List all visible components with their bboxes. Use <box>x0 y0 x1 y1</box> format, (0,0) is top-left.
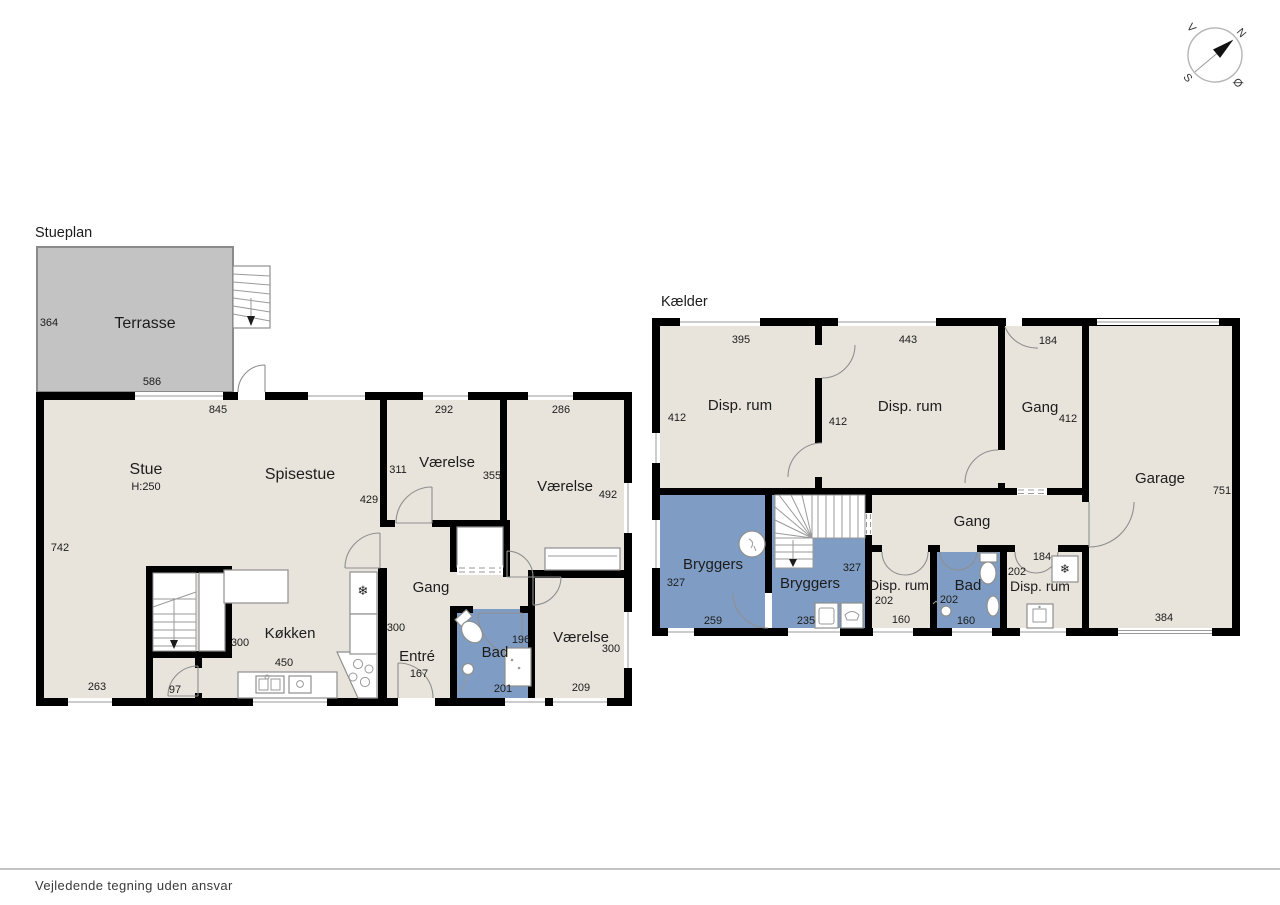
room-label-bad: Bad <box>482 644 509 661</box>
room-label-koekken: Køkken <box>265 625 316 642</box>
room-label-spisestue: Spisestue <box>265 466 335 483</box>
dim-bryggers-v-left: 327 <box>667 577 685 589</box>
floorplan-page: ❄ <box>0 0 1280 905</box>
utility-sink-icon <box>1027 604 1053 628</box>
dim-gang-n-door: 184 <box>1039 335 1057 347</box>
dim-gang-width: 300 <box>387 622 405 634</box>
compass-icon: N Ø S V <box>1157 0 1271 113</box>
closet-sliding-doors <box>457 565 503 575</box>
dim-vestibule: 97 <box>169 684 181 696</box>
dim-koekken-left: 300 <box>231 637 249 649</box>
compass-west-label: V <box>1184 21 1198 35</box>
dim-disp-n-left: 412 <box>829 416 847 428</box>
terrace-door <box>238 365 265 392</box>
room-label-disp-s2: Disp. rum <box>1010 578 1070 594</box>
dim-gang-n-right: 412 <box>1059 413 1077 425</box>
dim-spisestue-right: 429 <box>360 494 378 506</box>
dim-vaerelse-ne-right: 492 <box>599 489 617 501</box>
kitchen-counter <box>238 672 337 698</box>
floor-drain-icon <box>739 531 765 557</box>
kitchen-island <box>224 570 288 603</box>
room-label-stue: Stue <box>130 461 163 478</box>
dim-vaerelse-nv-left: 311 <box>389 464 407 476</box>
bath-cabinet-icon <box>505 648 531 686</box>
room-label-entre: Entré <box>399 648 435 665</box>
room-label-bad-kaelder: Bad <box>955 577 982 594</box>
footer: Vejledende tegning uden ansvar <box>0 869 1280 893</box>
room-label-garage: Garage <box>1135 470 1185 487</box>
svg-text:❄: ❄ <box>1060 562 1070 576</box>
dim-vaerelse-nv-top: 292 <box>435 404 453 416</box>
dim-bryggers-m-bottom: 235 <box>797 615 815 627</box>
dim-vaerelse-ne-top: 286 <box>552 404 570 416</box>
stue-ceiling-height: H:250 <box>131 481 160 493</box>
dim-bad-bottom: 201 <box>494 683 512 695</box>
dim-vaerelse-se-bottom: 209 <box>572 682 590 694</box>
room-label-bryggers-m: Bryggers <box>780 575 840 592</box>
compass-east-label: Ø <box>1230 76 1245 91</box>
room-label-terrasse: Terrasse <box>114 315 175 332</box>
toilet-kaelder-icon <box>980 553 997 584</box>
stairs-icon <box>153 573 225 651</box>
room-label-vaerelse-ne: Værelse <box>537 478 593 495</box>
room-label-gang-m: Gang <box>954 513 991 530</box>
stueplan-floorplan: ❄ <box>35 225 632 706</box>
wardrobe-icon <box>545 548 620 570</box>
dim-koekken-bottom: 450 <box>275 657 293 669</box>
compass-south-label: S <box>1180 71 1194 84</box>
washing-machine-icon <box>815 603 838 628</box>
dim-bad-right: 196 <box>512 634 530 646</box>
dim-stue-left: 742 <box>51 542 69 554</box>
dim-disp-nv-left: 412 <box>668 412 686 424</box>
garage-door <box>1118 628 1212 636</box>
dim-garage-right: 751 <box>1213 485 1231 497</box>
room-label-bryggers-v: Bryggers <box>683 556 743 573</box>
dim-garage-bottom: 384 <box>1155 612 1173 624</box>
hall-closet <box>457 527 503 567</box>
room-label-disp-nv: Disp. rum <box>708 397 772 414</box>
floor-base <box>40 396 628 702</box>
room-label-vaerelse-se: Værelse <box>553 629 609 646</box>
dim-vaerelse-se-right: 300 <box>602 643 620 655</box>
floorplan-drawing: ❄ <box>0 0 1280 905</box>
dim-disp-n-top: 443 <box>899 334 917 346</box>
sink-icon <box>256 675 284 693</box>
dim-stue-bottom: 263 <box>88 681 106 693</box>
dim-disp-nv-top: 395 <box>732 334 750 346</box>
terrace-stairs-icon <box>233 266 270 328</box>
dim-vaerelse-nv-right: 355 <box>483 470 501 482</box>
kaelder-title: Kælder <box>661 294 708 310</box>
dim-bryggers-m-right: 327 <box>843 562 861 574</box>
stueplan-title: Stueplan <box>35 225 92 241</box>
room-label-disp-s1: Disp. rum <box>869 577 929 593</box>
dishwasher-icon <box>289 676 311 693</box>
dim-bad-kaelder-left: 202 <box>940 594 958 606</box>
dim-disp-s2-left: 202 <box>1008 566 1026 578</box>
freezer-snowflake-icon: ❄ <box>358 583 369 598</box>
room-label-disp-n: Disp. rum <box>878 398 942 415</box>
dim-disp-s1-bottom: 160 <box>892 614 910 626</box>
dim-bryggers-v-bottom: 259 <box>704 615 722 627</box>
dim-terrasse-bottom: 586 <box>143 376 161 388</box>
dim-entre: 167 <box>410 668 428 680</box>
kaelder-floorplan: ❄ Kælder Disp. rum 395 412 Disp. rum 443… <box>652 294 1240 636</box>
room-label-gang-n: Gang <box>1022 399 1059 416</box>
dim-stue-top: 845 <box>209 404 227 416</box>
footer-disclaimer: Vejledende tegning uden ansvar <box>35 878 233 893</box>
fridge-icon: ❄ <box>350 572 377 654</box>
dryer-icon <box>841 603 863 628</box>
dim-disp-s2-top: 184 <box>1033 551 1051 563</box>
room-label-vaerelse-nv: Værelse <box>419 454 475 471</box>
washbasin-kaelder-icon <box>987 596 999 616</box>
dim-terrasse-left: 364 <box>40 317 58 329</box>
dim-bad-kaelder-bottom: 160 <box>957 615 975 627</box>
room-label-gang: Gang <box>413 579 450 596</box>
dim-disp-s1-left: 202 <box>875 595 893 607</box>
compass-needle <box>1213 35 1237 58</box>
